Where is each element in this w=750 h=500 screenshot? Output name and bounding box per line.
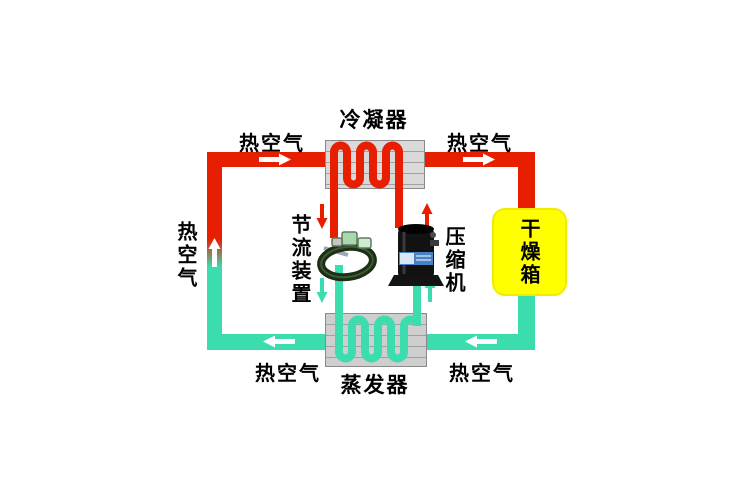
airflow-left-arrow-bottom-right-icon [464,335,498,348]
drying-box-label: 干燥箱 [515,218,544,287]
throttle-device-label: 节流装置 [286,214,315,306]
hot-air-label-top-left: 热空气 [239,127,305,156]
hot-air-label-bottom-left: 热空气 [255,357,321,386]
airflow-left-arrow-bottom-left-icon [262,335,296,348]
hot-air-label-left: 热空气 [172,221,201,290]
evaporator-label: 蒸发器 [325,369,425,399]
condenser-label: 冷凝器 [325,104,423,134]
hot-air-label-bottom-right: 热空气 [449,357,515,386]
hot-air-duct-right [518,152,535,212]
throttle-device-image [312,224,382,290]
cool-air-duct-right [518,288,535,350]
drying-box: 干燥箱 [492,208,567,296]
airflow-up-arrow-left-icon [208,237,221,269]
heat-pump-drying-diagram: 干燥箱 [0,0,750,500]
compressor-image [386,220,446,290]
hot-air-label-top-right: 热空气 [447,127,513,156]
compressor-label: 压缩机 [440,226,469,295]
